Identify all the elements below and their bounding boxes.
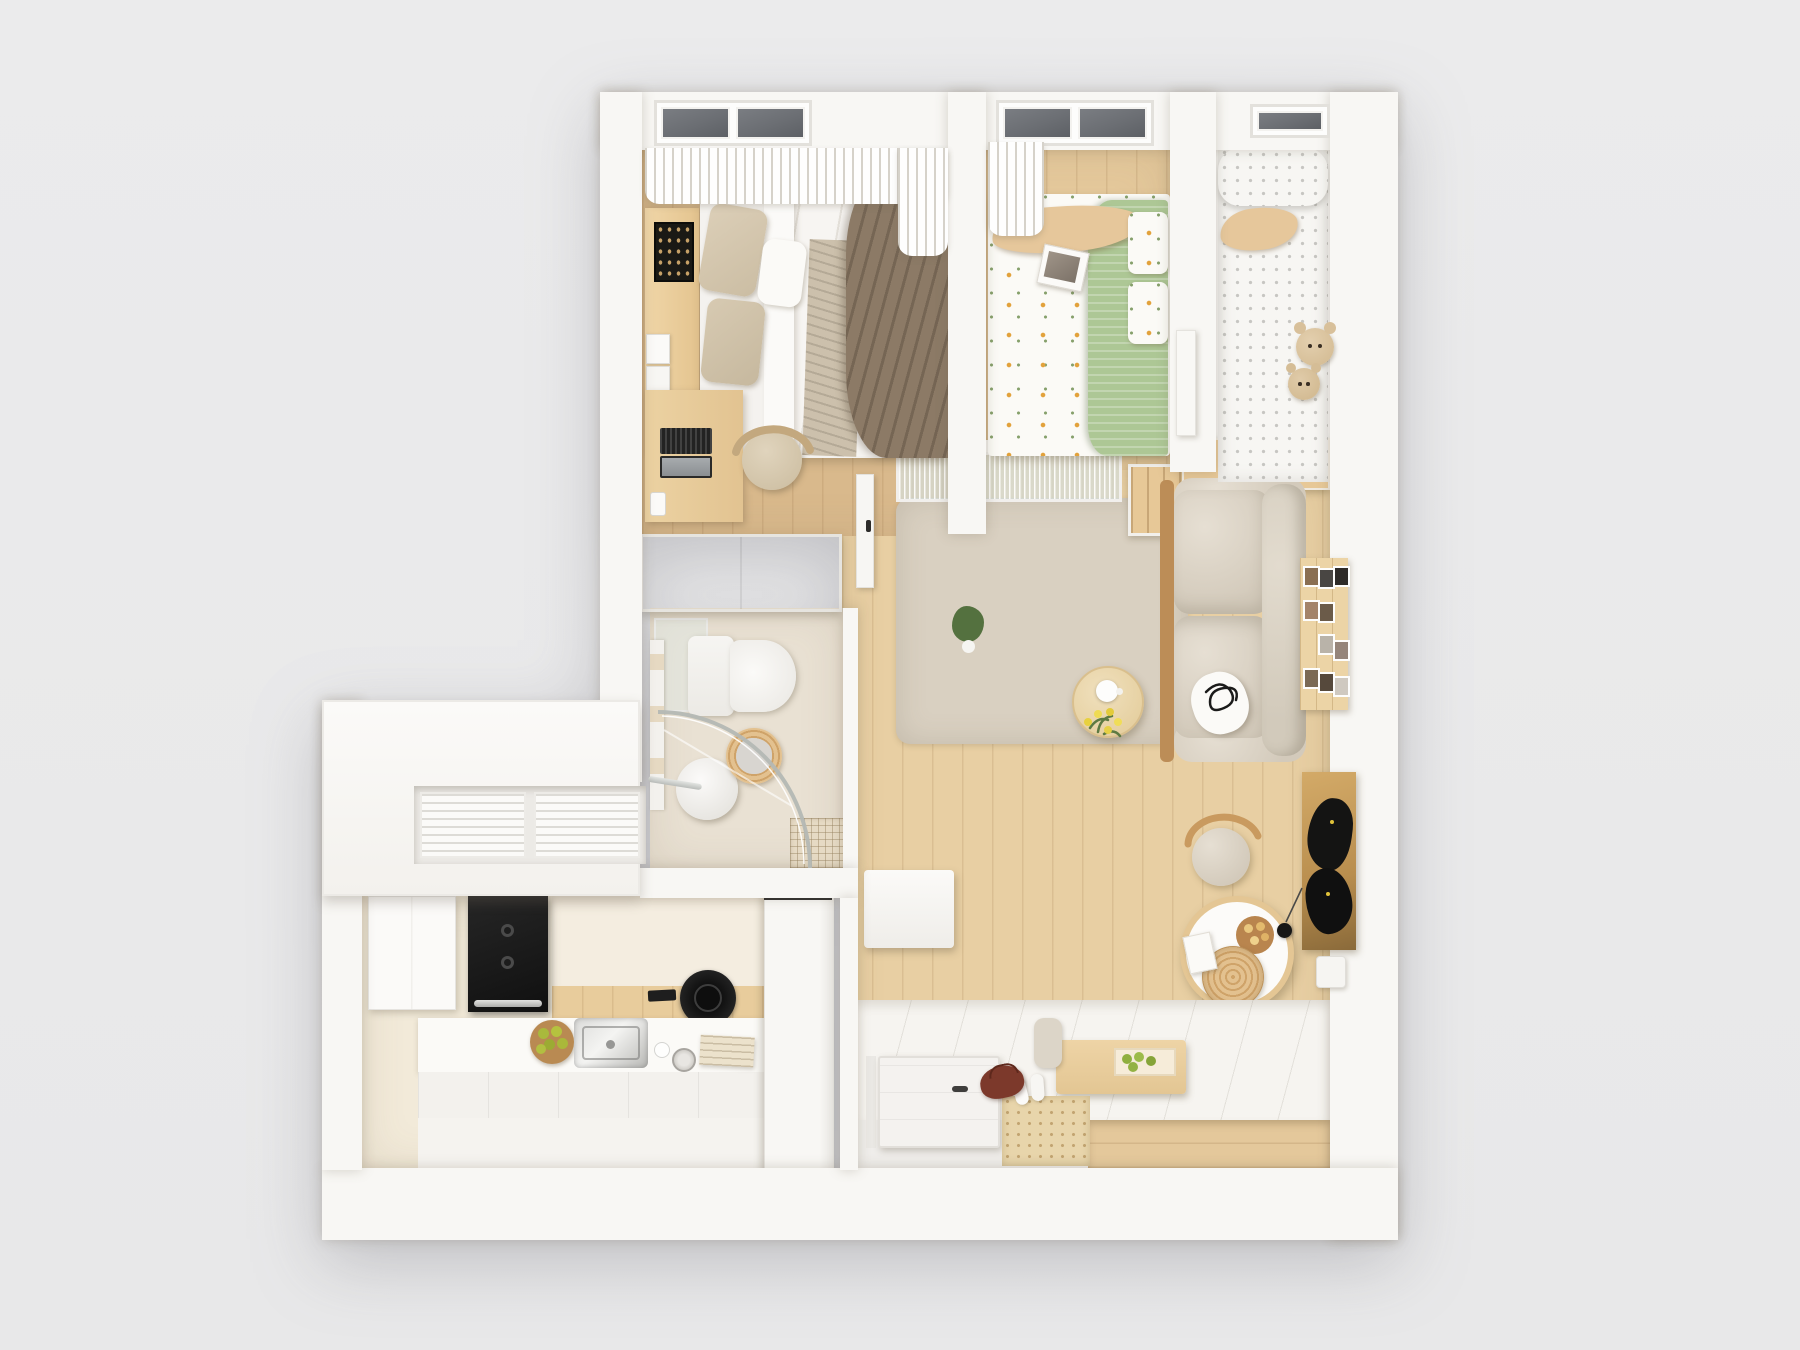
- kitchen-pocket-door: [764, 892, 834, 1192]
- shower-drain-mat: [790, 818, 848, 868]
- teapot: [1096, 680, 1118, 702]
- bathroom-south-wall: [640, 868, 858, 898]
- bolster-pillow: [1218, 148, 1328, 206]
- small-white-device: [1316, 956, 1346, 988]
- bathroom-wall-shelf: [650, 640, 664, 810]
- teddy-eye: [1318, 344, 1322, 348]
- front-door-handle: [952, 1086, 968, 1092]
- toilet-tank: [688, 636, 734, 716]
- wall-between-bedrooms: [948, 92, 986, 534]
- door-frame: [866, 1056, 876, 1148]
- slipper: [1030, 1074, 1045, 1102]
- laptop-keyboard: [660, 428, 712, 454]
- outer-wall-left-upper: [600, 92, 642, 782]
- dried-flower-art: [654, 222, 694, 282]
- cookie: [1244, 924, 1253, 933]
- smartphone: [650, 492, 666, 516]
- hob-ring: [694, 984, 722, 1012]
- desk-chair-seat: [742, 430, 802, 490]
- green-apple: [538, 1028, 549, 1039]
- kids-room-door-leaf: [1176, 330, 1196, 436]
- door-handle: [866, 520, 871, 532]
- floral-pillow: [1128, 282, 1168, 344]
- glass-cup: [654, 1042, 670, 1058]
- cat-eye: [1330, 820, 1334, 824]
- laptop-screen: [660, 456, 712, 478]
- toilet-bowl: [730, 640, 796, 712]
- master-skylight-window: [654, 100, 812, 146]
- photo-frame: [1333, 566, 1350, 587]
- teapot-spout: [1116, 688, 1123, 695]
- teddy-ear: [1324, 322, 1336, 334]
- oven-knob: [501, 924, 514, 937]
- green-apple: [551, 1026, 562, 1037]
- green-fruit: [1146, 1056, 1156, 1066]
- coffee-table: [1072, 666, 1144, 738]
- teddy-eye: [1306, 382, 1310, 386]
- cookie: [1261, 933, 1269, 941]
- oven-handle: [474, 1000, 542, 1007]
- white-pillow: [756, 238, 808, 309]
- metal-jar: [672, 1048, 696, 1072]
- green-apple: [557, 1038, 568, 1049]
- duvet-fold: [764, 170, 794, 456]
- sliding-glass-door: [896, 452, 1122, 502]
- green-fruit: [1134, 1052, 1144, 1062]
- window-glass: [1257, 111, 1323, 131]
- floor-cushion: [1034, 1018, 1062, 1068]
- oven-knob: [501, 956, 514, 969]
- sofa-wood-frame: [1160, 480, 1174, 762]
- storage-box-seat: [864, 870, 954, 948]
- dining-chair-seat: [1192, 828, 1250, 886]
- window-glass: [736, 107, 805, 139]
- photo-frame: [1318, 602, 1335, 623]
- louvered-window: [534, 792, 640, 858]
- nursery-window: [1250, 104, 1330, 138]
- window-glass: [661, 107, 730, 139]
- cat-eye: [1326, 892, 1330, 896]
- bedroom-door-leaf: [856, 474, 874, 588]
- perforated-entry-mat: [1002, 1096, 1090, 1166]
- teddy-ear: [1294, 322, 1306, 334]
- louvered-window: [420, 792, 526, 858]
- kids-curtain: [988, 142, 1044, 236]
- towel: [736, 738, 772, 774]
- teddy-eye: [1298, 382, 1302, 386]
- beige-pillow: [700, 297, 766, 387]
- master-curtain-drape: [898, 148, 948, 256]
- outer-wall-bottom: [322, 1168, 1398, 1240]
- teddy-ear: [1311, 363, 1321, 373]
- kitchen-east-wall: [840, 898, 858, 1170]
- teddy-eye: [1308, 344, 1312, 348]
- kids-skylight-window: [996, 100, 1154, 146]
- built-in-oven: [468, 896, 548, 1012]
- bathroom-east-wall: [843, 608, 858, 870]
- sink-drain: [606, 1040, 615, 1049]
- green-apple: [536, 1044, 546, 1054]
- photo-frame: [1333, 676, 1350, 697]
- plant-pot: [962, 640, 975, 653]
- teddy-ear: [1286, 363, 1296, 373]
- cookie: [1250, 936, 1259, 945]
- window-glass: [1003, 107, 1072, 139]
- platform-drawer-front: [1088, 1120, 1330, 1168]
- refrigerator: [368, 896, 456, 1010]
- cat-teaser-ball: [1277, 923, 1292, 938]
- photo-frame: [1333, 640, 1350, 661]
- floorplan-render: [0, 0, 1800, 1350]
- sofa-seat-cushion: [1174, 490, 1270, 614]
- cookie: [1256, 922, 1265, 931]
- front-door: [878, 1056, 1000, 1148]
- apartment-plan: [0, 0, 1800, 1350]
- light-switch: [646, 334, 670, 364]
- green-fruit: [1128, 1062, 1138, 1072]
- window-glass: [1078, 107, 1147, 139]
- floral-pillow: [1128, 212, 1168, 274]
- cutting-boards: [699, 1035, 754, 1068]
- wardrobe-cabinet: [640, 534, 842, 612]
- hob-remote: [648, 989, 677, 1001]
